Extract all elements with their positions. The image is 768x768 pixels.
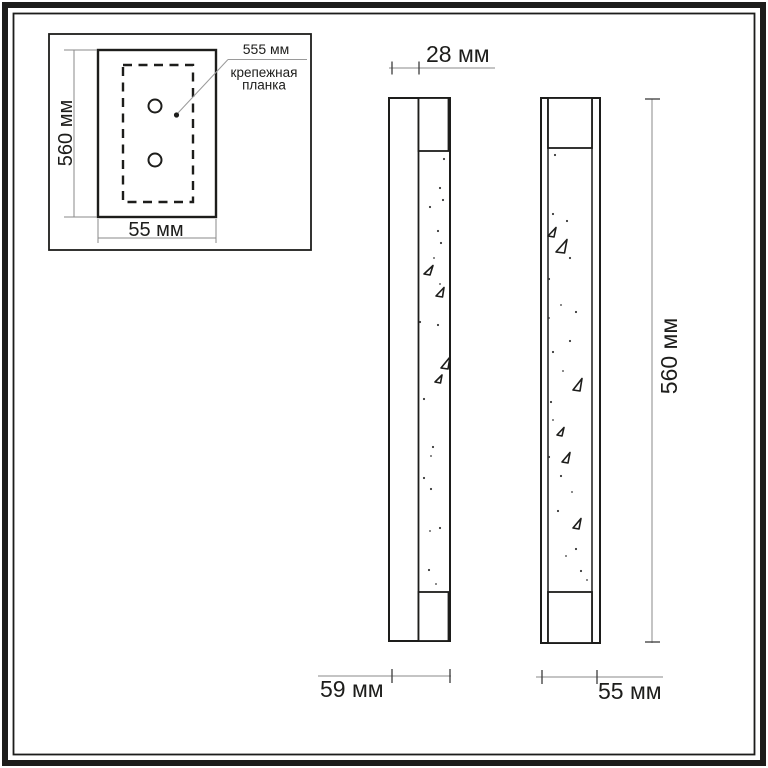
callout-anchor-dot bbox=[174, 112, 179, 117]
inset-width-label: 55 мм bbox=[128, 219, 183, 241]
front-width-label: 55 мм bbox=[598, 678, 662, 704]
mounting-hole-icon bbox=[149, 154, 162, 167]
inset-height-dimension: 560 мм bbox=[55, 50, 97, 217]
front-height-label: 560 мм bbox=[656, 318, 682, 394]
side-view-outline bbox=[389, 98, 450, 641]
mounting-plate-inset: 560 мм 55 мм 555 мм крепежная планка bbox=[49, 34, 311, 250]
side-depth-dimension: 28 мм bbox=[389, 41, 495, 75]
front-width-dimension: 55 мм bbox=[536, 670, 663, 704]
front-view-top-cap bbox=[548, 98, 592, 148]
side-view: 28 мм 59 мм bbox=[318, 41, 495, 702]
diagram-canvas: 560 мм 55 мм 555 мм крепежная планка bbox=[0, 0, 768, 768]
front-view-bottom-cap bbox=[548, 592, 592, 643]
fixture-back-outline bbox=[98, 50, 216, 217]
front-view: 560 мм 55 мм bbox=[536, 98, 682, 704]
side-view-top-cap bbox=[419, 98, 449, 151]
callout-name-line2: планка bbox=[242, 78, 286, 93]
side-total-depth-dimension: 59 мм bbox=[318, 669, 451, 702]
inset-height-label: 560 мм bbox=[55, 100, 77, 166]
callout-value-label: 555 мм bbox=[243, 41, 290, 57]
mounting-hole-icon bbox=[149, 100, 162, 113]
front-view-outline bbox=[541, 98, 600, 643]
lamp-dimension-diagram: 560 мм 55 мм 555 мм крепежная планка bbox=[0, 0, 768, 768]
front-height-dimension: 560 мм bbox=[645, 99, 682, 643]
side-depth-bottom-label: 59 мм bbox=[320, 676, 384, 702]
inset-width-dimension: 55 мм bbox=[98, 219, 216, 243]
side-view-bottom-cap bbox=[419, 592, 449, 641]
side-depth-top-label: 28 мм bbox=[426, 41, 490, 67]
